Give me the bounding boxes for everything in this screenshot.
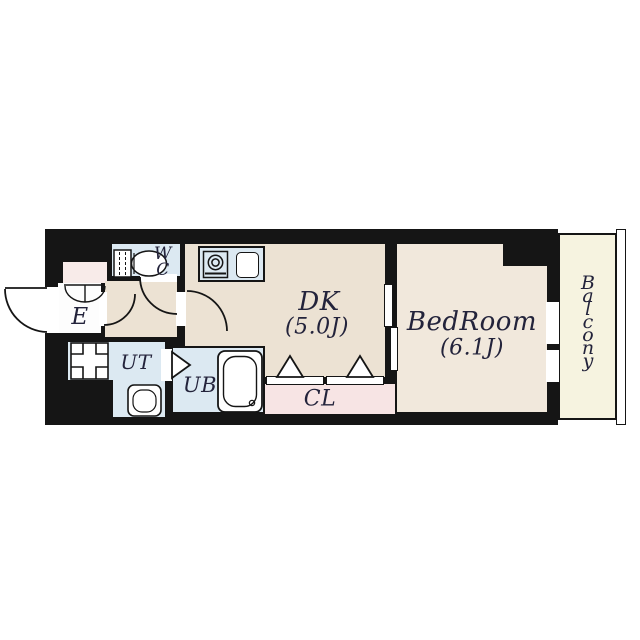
bathtub-icon — [218, 351, 262, 412]
entrance-label: E — [71, 304, 88, 330]
bedroom-size-label: (6.1J) — [440, 336, 504, 361]
dk-size-label: (5.0J) — [285, 315, 349, 340]
dk-door-arc-icon — [187, 291, 227, 331]
closet-label: CL — [304, 387, 336, 412]
stove-icon — [204, 252, 228, 278]
floorplan: W C E UT UB DK (5.0J) CL BedRoom (6.1J) … — [0, 0, 640, 640]
washbasin-icon — [128, 385, 161, 416]
washer-pan-icon — [71, 343, 108, 379]
shoe-cabinet-icon — [64, 285, 105, 302]
closet-folding-door-icon — [277, 356, 303, 377]
wc-door-arc-icon — [140, 277, 177, 314]
unit-bath-label: UB — [183, 373, 217, 397]
hall-door-arc-icon — [104, 294, 135, 325]
closet-folding-door-icon — [347, 356, 373, 377]
dk-label: DK — [298, 287, 339, 317]
balcony-label-letter: y — [577, 355, 599, 368]
bedroom-label: BedRoom — [407, 307, 537, 337]
entrance-door-arc-icon — [5, 289, 47, 332]
wc-label-line2: C — [156, 260, 170, 280]
utility-label: UT — [120, 350, 151, 374]
